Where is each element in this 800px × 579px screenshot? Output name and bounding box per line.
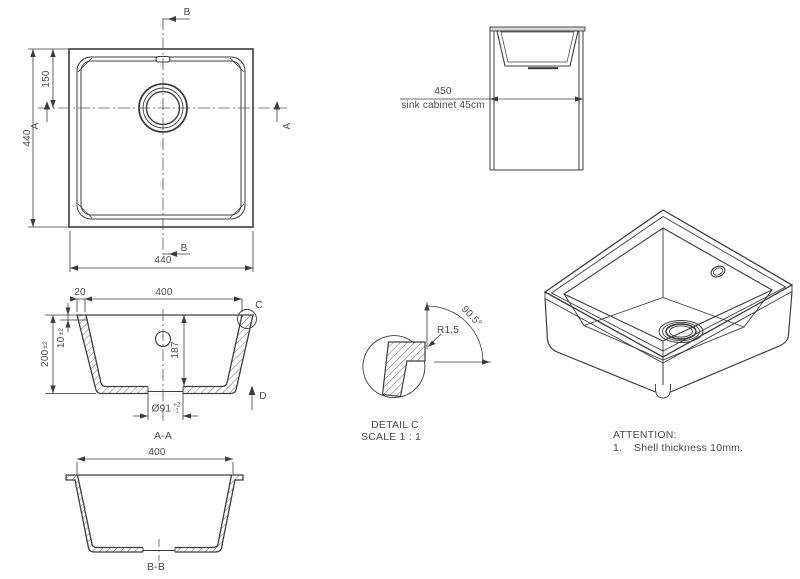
drain-3d	[659, 321, 703, 343]
cut-wall-hatched	[77, 315, 253, 394]
d-direction-label: D	[259, 392, 266, 402]
d-direction-arrow	[249, 386, 256, 396]
dim-20: 20	[74, 288, 86, 298]
dimension-lines	[28, 49, 253, 272]
dim-drain-diameter: Ø91 +2 -1	[152, 404, 181, 415]
dim-200-tol: 200±2	[41, 341, 51, 367]
section-b-label-bottom: B	[181, 244, 188, 254]
section-aa-title: A-A	[154, 431, 172, 442]
dim-400-bb: 400	[148, 448, 165, 458]
attention-heading: ATTENTION:	[613, 430, 677, 441]
centerlines	[38, 18, 287, 256]
rim-edges	[545, 285, 792, 363]
countertop	[490, 27, 585, 31]
attention-note: 1. Shell thickness 10mm.	[613, 443, 743, 454]
section-b-label-top: B	[184, 8, 191, 18]
section-bb-title: B-B	[147, 562, 165, 573]
wall-section-hatched	[383, 342, 426, 397]
dim-400-aa: 400	[155, 288, 172, 298]
cabinet-side-view	[400, 27, 585, 170]
dim-440-bottom: 440	[154, 256, 171, 266]
overflow-hole-3d	[709, 264, 726, 279]
dim-440-left: 440	[23, 129, 33, 146]
dim-450: 450	[434, 87, 451, 97]
dim-150: 150	[42, 70, 52, 87]
radius-label: R1,5	[437, 326, 459, 336]
extension-lines	[45, 299, 252, 420]
section-bb-view	[66, 456, 243, 561]
cut-wall-hatched	[66, 475, 243, 552]
dim-187: 187	[171, 341, 181, 358]
detail-c-marker-label: C	[255, 301, 262, 311]
technical-drawing-page: B B A A 150 440 440 450 sink cabinet 45c…	[0, 0, 800, 579]
cabinet-caption: sink cabinet 45cm	[401, 101, 484, 111]
dim-10-tol: 10±2	[57, 328, 67, 348]
top-view-drawing	[28, 16, 287, 272]
dimension-arrowheads	[30, 49, 253, 271]
detail-c-title: DETAIL C	[371, 420, 419, 431]
front-foot	[656, 384, 671, 398]
section-a-label-right: A	[283, 123, 293, 130]
isometric-view	[545, 210, 792, 398]
detail-c-scale: SCALE 1 : 1	[361, 432, 421, 443]
drawing-linework	[0, 0, 800, 579]
